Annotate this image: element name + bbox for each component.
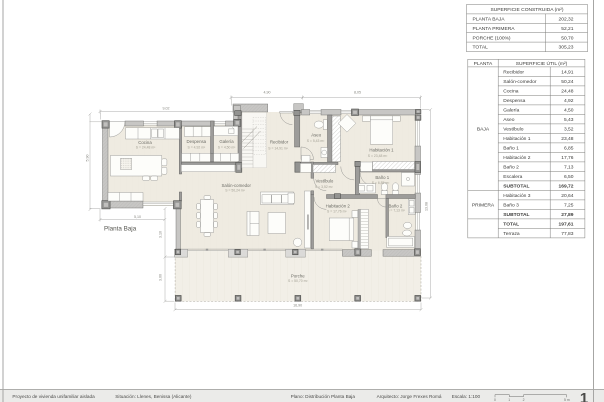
svg-text:Vestíbulo: Vestíbulo [503,126,523,132]
svg-text:16,90: 16,90 [293,304,302,308]
svg-text:Aseo: Aseo [503,117,514,123]
svg-text:14,91: 14,91 [561,69,574,75]
svg-text:SUBTOTAL: SUBTOTAL [503,183,529,189]
svg-text:Habitación 1: Habitación 1 [369,148,394,153]
svg-text:202,32: 202,32 [559,17,574,23]
svg-text:Terraza: Terraza [503,231,520,237]
svg-text:S = 24,48 m²: S = 24,48 m² [136,146,156,150]
svg-text:Salón-comedor: Salón-comedor [503,79,537,85]
svg-text:Arquitecto: Jorge Frexes Romá: Arquitecto: Jorge Frexes Romá [377,394,442,399]
svg-text:PLANTA: PLANTA [474,61,493,67]
svg-text:PLANTA BAJA: PLANTA BAJA [473,17,506,23]
svg-text:Habitación 2: Habitación 2 [326,204,351,209]
svg-text:5,43: 5,43 [564,117,574,123]
svg-text:3,10: 3,10 [159,231,163,238]
svg-text:Despensa: Despensa [187,139,207,144]
svg-text:PRIMERA: PRIMERA [472,203,495,209]
svg-text:BAJA: BAJA [477,127,490,133]
svg-text:Baño 1: Baño 1 [503,145,519,151]
svg-text:PLANTA PRIMERA: PLANTA PRIMERA [473,26,516,32]
svg-text:S = 3,52 m²: S = 3,52 m² [315,185,333,189]
svg-text:TOTAL: TOTAL [473,45,489,51]
svg-text:SUBTOTAL: SUBTOTAL [503,212,529,218]
svg-text:Habitación 2: Habitación 2 [503,155,530,161]
svg-text:Habitación 3: Habitación 3 [503,193,530,199]
svg-text:Baño 3: Baño 3 [503,202,519,208]
svg-text:S = 6,85 m²: S = 6,85 m² [372,181,390,185]
svg-text:SUPERFICIE CONSTRUIDA (m²): SUPERFICIE CONSTRUIDA (m²) [490,7,563,13]
svg-text:Galería: Galería [219,139,234,144]
svg-text:5,10: 5,10 [134,215,141,219]
svg-text:Porche: Porche [291,273,305,278]
svg-text:S = 50,70 m²: S = 50,70 m² [288,279,308,283]
svg-text:Plano: Distribución Planta Ba: Plano: Distribución Planta Baja [291,394,356,399]
svg-text:3,52: 3,52 [564,126,574,132]
svg-text:Salón-comedor: Salón-comedor [221,183,251,188]
svg-text:6,50: 6,50 [564,174,574,180]
svg-text:23,48: 23,48 [561,136,574,142]
svg-text:20,64: 20,64 [561,193,574,199]
svg-text:Cocina: Cocina [138,140,152,145]
svg-text:50,24: 50,24 [561,79,574,85]
svg-text:S = 14,91 m²: S = 14,91 m² [268,147,288,151]
svg-text:TOTAL: TOTAL [503,221,519,227]
svg-text:6,85: 6,85 [564,145,574,151]
svg-text:Recibidor: Recibidor [270,140,289,145]
svg-text:Baño 1: Baño 1 [375,175,389,180]
svg-text:305,23: 305,23 [559,45,574,51]
svg-text:Escalera: Escalera [503,174,522,180]
svg-text:Vestíbulo: Vestíbulo [315,179,333,184]
svg-text:1: 1 [508,398,510,402]
svg-text:52,21: 52,21 [561,26,574,32]
svg-text:169,72: 169,72 [559,183,574,189]
svg-text:5,90: 5,90 [86,155,90,162]
svg-text:S = 4,50 m²: S = 4,50 m² [218,146,236,150]
svg-text:Escala: 1:100: Escala: 1:100 [452,394,481,399]
svg-text:Baño 2: Baño 2 [503,164,519,170]
svg-text:S = 23,48 m²: S = 23,48 m² [368,154,388,158]
svg-text:27,89: 27,89 [561,212,574,218]
svg-text:7,25: 7,25 [564,202,574,208]
svg-text:Proyecto de vivienda unifamili: Proyecto de vivienda unifamiliar aislada [12,394,95,399]
svg-text:50,70: 50,70 [561,35,574,41]
svg-text:S = 17,76 m²: S = 17,76 m² [327,210,347,214]
svg-text:2: 2 [523,398,525,402]
svg-text:13,08: 13,08 [424,202,428,211]
svg-text:77,83: 77,83 [561,231,574,237]
svg-text:9,02: 9,02 [163,107,170,111]
svg-text:Situación: Llenes, Benissa (A: Situación: Llenes, Benissa (Alicante) [115,394,192,399]
svg-text:Habitación 1: Habitación 1 [503,136,530,142]
svg-text:197,61: 197,61 [559,221,574,227]
svg-text:Planta Baja: Planta Baja [104,225,137,232]
svg-text:SUPERFICIE ÚTIL (m²): SUPERFICIE ÚTIL (m²) [516,60,568,67]
svg-text:4,50: 4,50 [564,107,574,113]
svg-text:4,90: 4,90 [264,90,271,94]
svg-text:7,13: 7,13 [564,164,574,170]
svg-text:S = 50,24 m²: S = 50,24 m² [225,189,245,193]
svg-text:Aseo: Aseo [311,133,321,138]
svg-text:0: 0 [494,398,496,402]
svg-text:8,05: 8,05 [354,90,361,94]
svg-text:17,76: 17,76 [561,155,574,161]
svg-text:4,92: 4,92 [564,98,574,104]
svg-text:Cocina: Cocina [503,88,519,94]
svg-text:3,00: 3,00 [159,274,163,281]
svg-text:Recibidor: Recibidor [503,69,524,75]
svg-text:S = 4,92 m²: S = 4,92 m² [187,146,205,150]
svg-text:24,48: 24,48 [561,88,574,94]
svg-text:S = 7,13 m²: S = 7,13 m² [387,209,405,213]
svg-text:5 m: 5 m [564,398,570,402]
svg-text:1: 1 [580,390,588,402]
svg-text:Galería: Galería [503,107,519,113]
svg-text:PORCHE (100%): PORCHE (100%) [473,35,511,41]
svg-text:S = 5,43 m²: S = 5,43 m² [307,139,325,143]
svg-text:Despensa: Despensa [503,98,525,104]
